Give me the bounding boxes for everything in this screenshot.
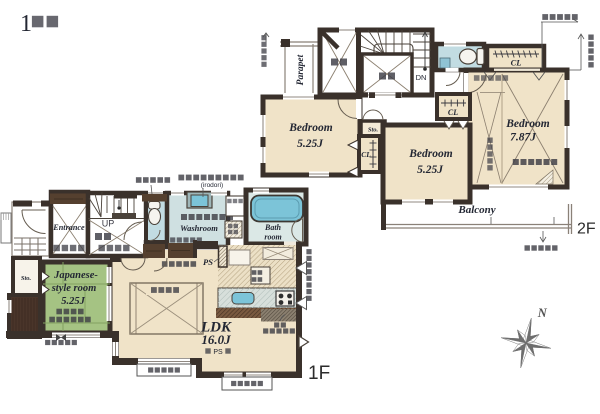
svg-text:1: 1	[20, 11, 32, 37]
svg-text:Sto.: Sto.	[21, 275, 32, 282]
svg-text:Entrance: Entrance	[52, 223, 85, 232]
svg-text:DN: DN	[416, 73, 427, 82]
svg-text:CL: CL	[511, 58, 522, 68]
svg-text:style room: style room	[51, 283, 97, 294]
svg-text:16.0J: 16.0J	[201, 332, 231, 347]
svg-text:5.25J: 5.25J	[61, 296, 85, 307]
svg-text:5.25J: 5.25J	[417, 164, 444, 176]
svg-text:7.87J: 7.87J	[510, 132, 537, 144]
svg-text:Sto.: Sto.	[368, 127, 379, 134]
svg-text:CL: CL	[361, 150, 371, 159]
svg-text:room: room	[264, 233, 281, 242]
svg-text:Japanese-: Japanese-	[53, 270, 98, 281]
svg-text:(irodori): (irodori)	[201, 182, 223, 189]
svg-text:Washroom: Washroom	[180, 223, 218, 233]
svg-text:Balcony: Balcony	[457, 204, 495, 216]
svg-text:1F: 1F	[308, 363, 330, 384]
svg-text:Parapet: Parapet	[296, 54, 306, 85]
svg-text:Bedroom: Bedroom	[408, 148, 453, 160]
svg-text:PS: PS	[203, 257, 213, 267]
svg-text:UP: UP	[102, 219, 115, 229]
svg-text:5.25J: 5.25J	[297, 138, 324, 150]
svg-text:Bedroom: Bedroom	[288, 122, 333, 134]
svg-text:Bedroom: Bedroom	[505, 118, 550, 130]
svg-text:Bath: Bath	[264, 223, 282, 232]
svg-text:PS: PS	[213, 349, 223, 356]
svg-text:N: N	[537, 306, 548, 320]
svg-text:2F: 2F	[577, 221, 596, 238]
svg-text:CL: CL	[448, 108, 458, 117]
